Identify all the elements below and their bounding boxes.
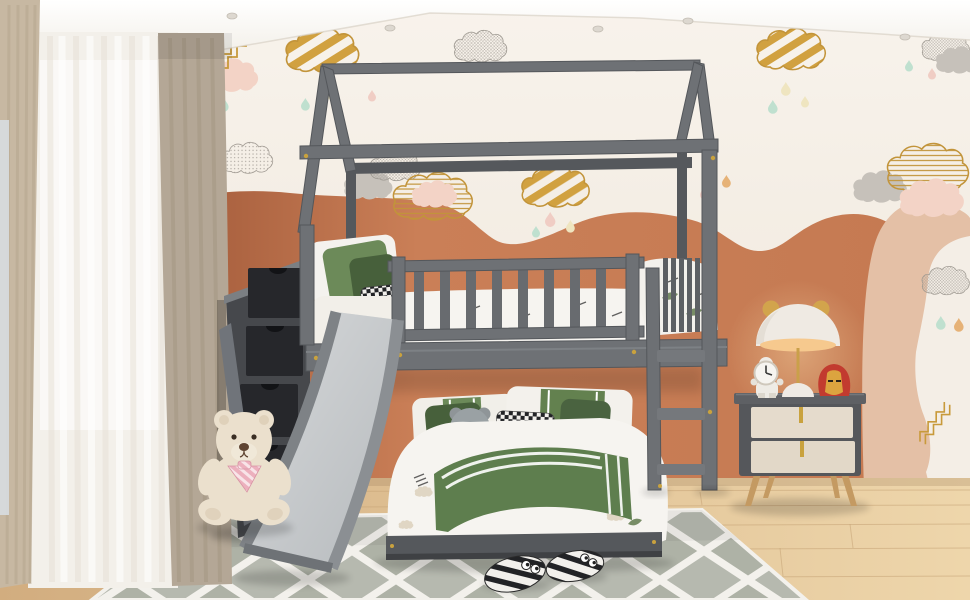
drawer-handle	[800, 441, 804, 457]
ladder-left-stile	[646, 268, 661, 490]
bedroom-scene: Children's bedroom with gray house-frame…	[0, 0, 970, 600]
lamp-stem	[797, 348, 800, 384]
drawer-handle	[799, 407, 803, 423]
window-curtains: Window with sheer curtain and drapes	[0, 0, 232, 588]
front-right-post	[702, 150, 717, 490]
front-left-post	[300, 225, 314, 345]
drawer	[248, 268, 306, 318]
drawer	[246, 326, 303, 376]
bottom-bunk: Bottom bunk with white and green bedding	[374, 386, 674, 573]
window-sky-sliver	[0, 120, 9, 515]
